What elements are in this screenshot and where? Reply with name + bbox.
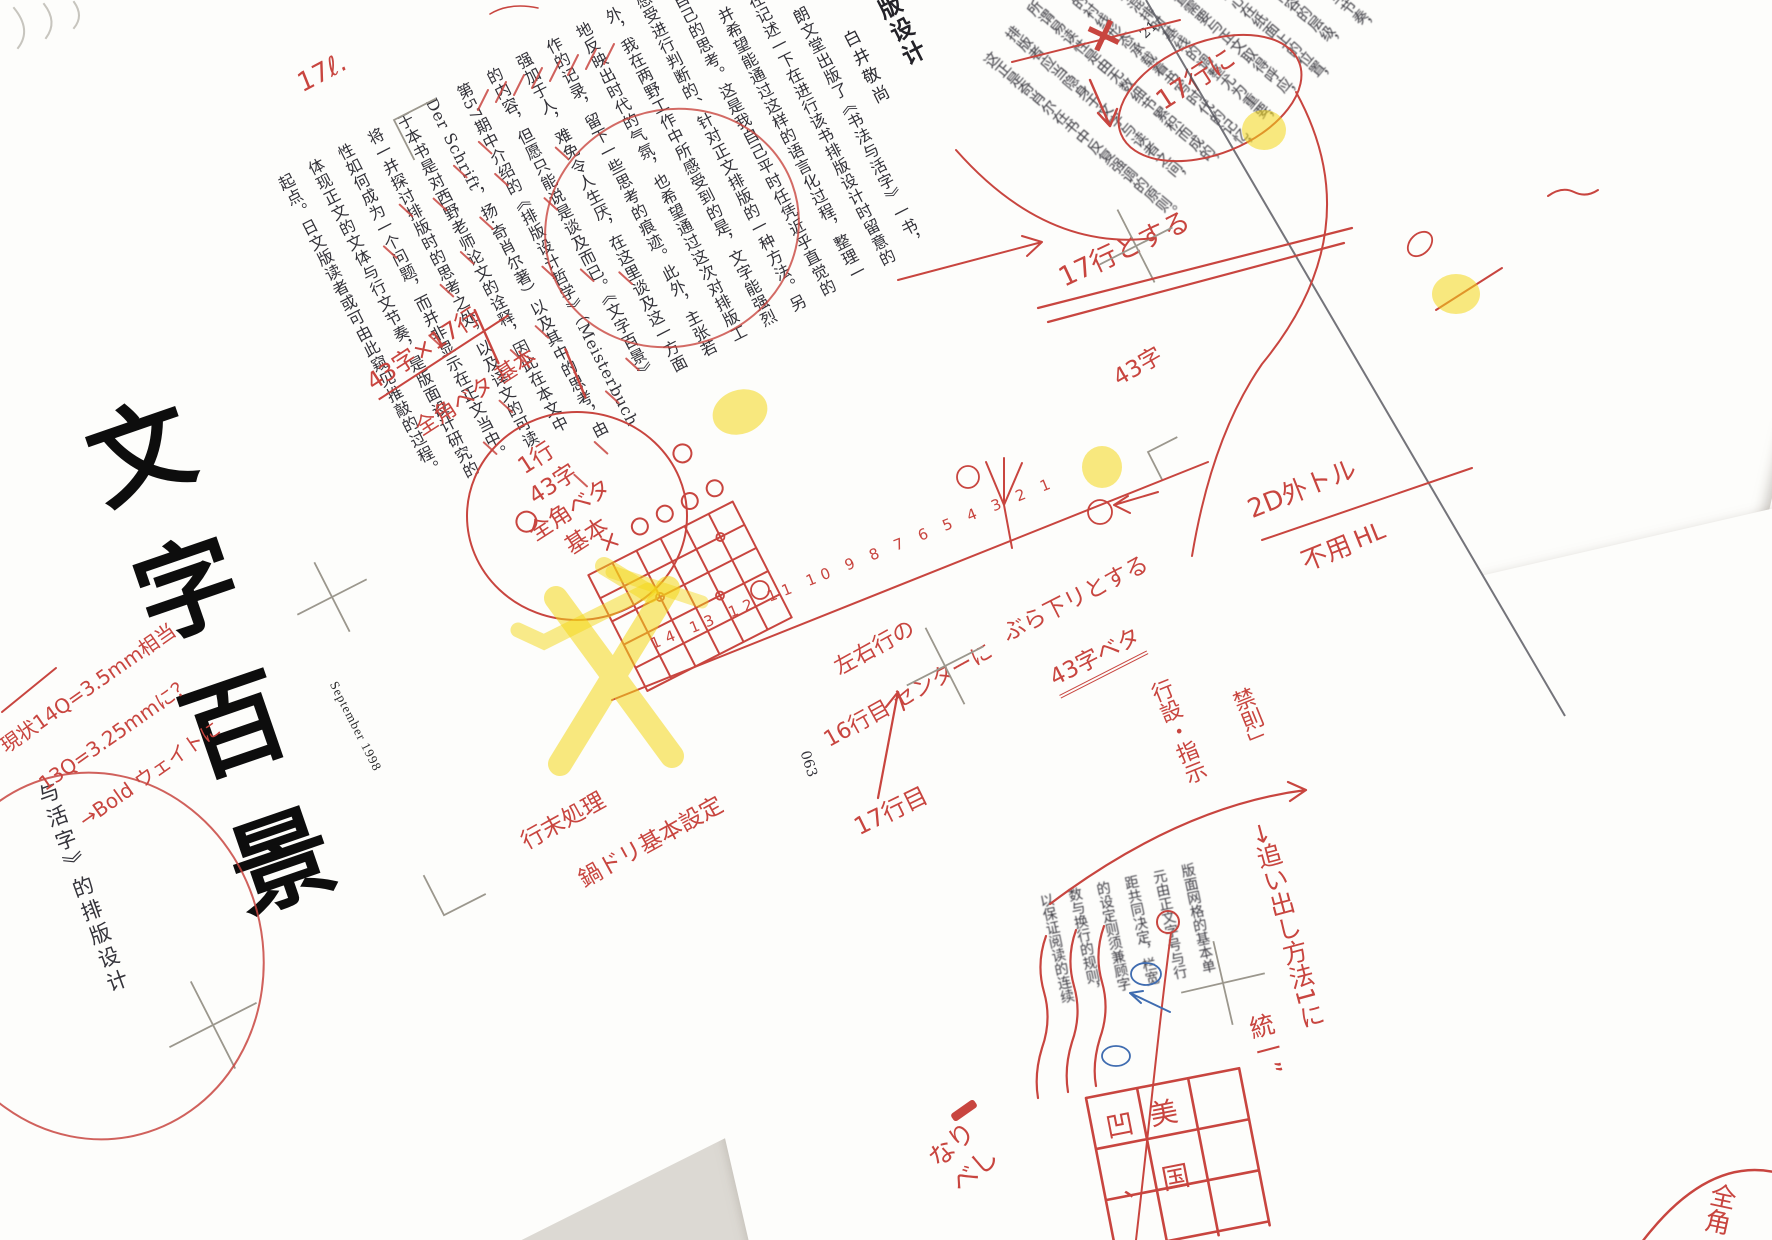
photo-of-annotated-proofs: 排版的基础在于对字符形态的观察与把握， 正文字号与行长之间保持适度的比例关系， …: [0, 0, 1772, 1240]
